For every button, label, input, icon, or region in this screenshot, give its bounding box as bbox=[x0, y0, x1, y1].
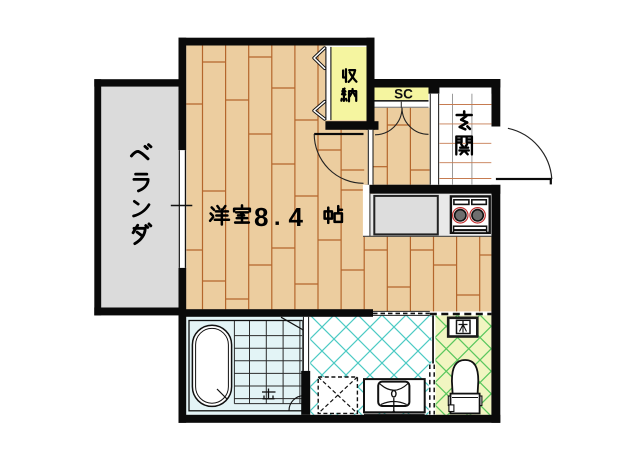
svg-text:SC: SC bbox=[394, 87, 413, 102]
svg-text:8: 8 bbox=[254, 202, 268, 232]
svg-text:4: 4 bbox=[289, 202, 304, 232]
